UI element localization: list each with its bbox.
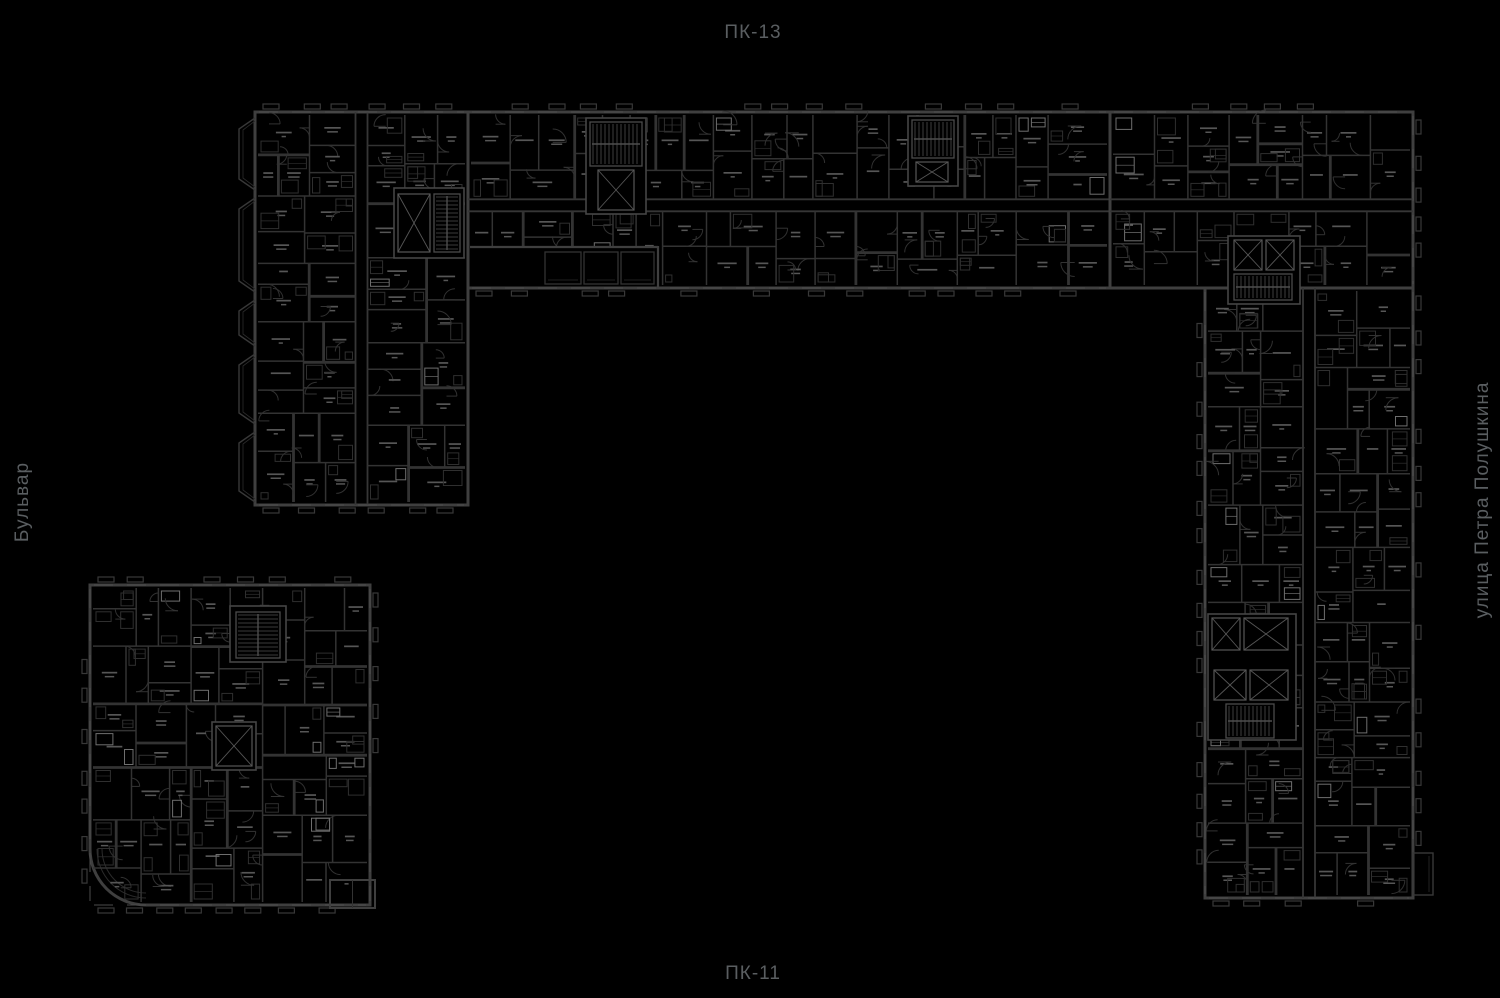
label-boulevard: Бульвар — [12, 462, 34, 542]
label-pk-13: ПК-13 — [724, 22, 781, 44]
label-pk-11: ПК-11 — [725, 963, 781, 985]
site-plan: ПК-13 ПК-11 Бульвар улица Петра Полушкин… — [0, 0, 1500, 998]
floor-plan-drawing — [0, 0, 1500, 998]
label-street-petra-polushkina: улица Петра Полушкина — [1472, 382, 1494, 619]
